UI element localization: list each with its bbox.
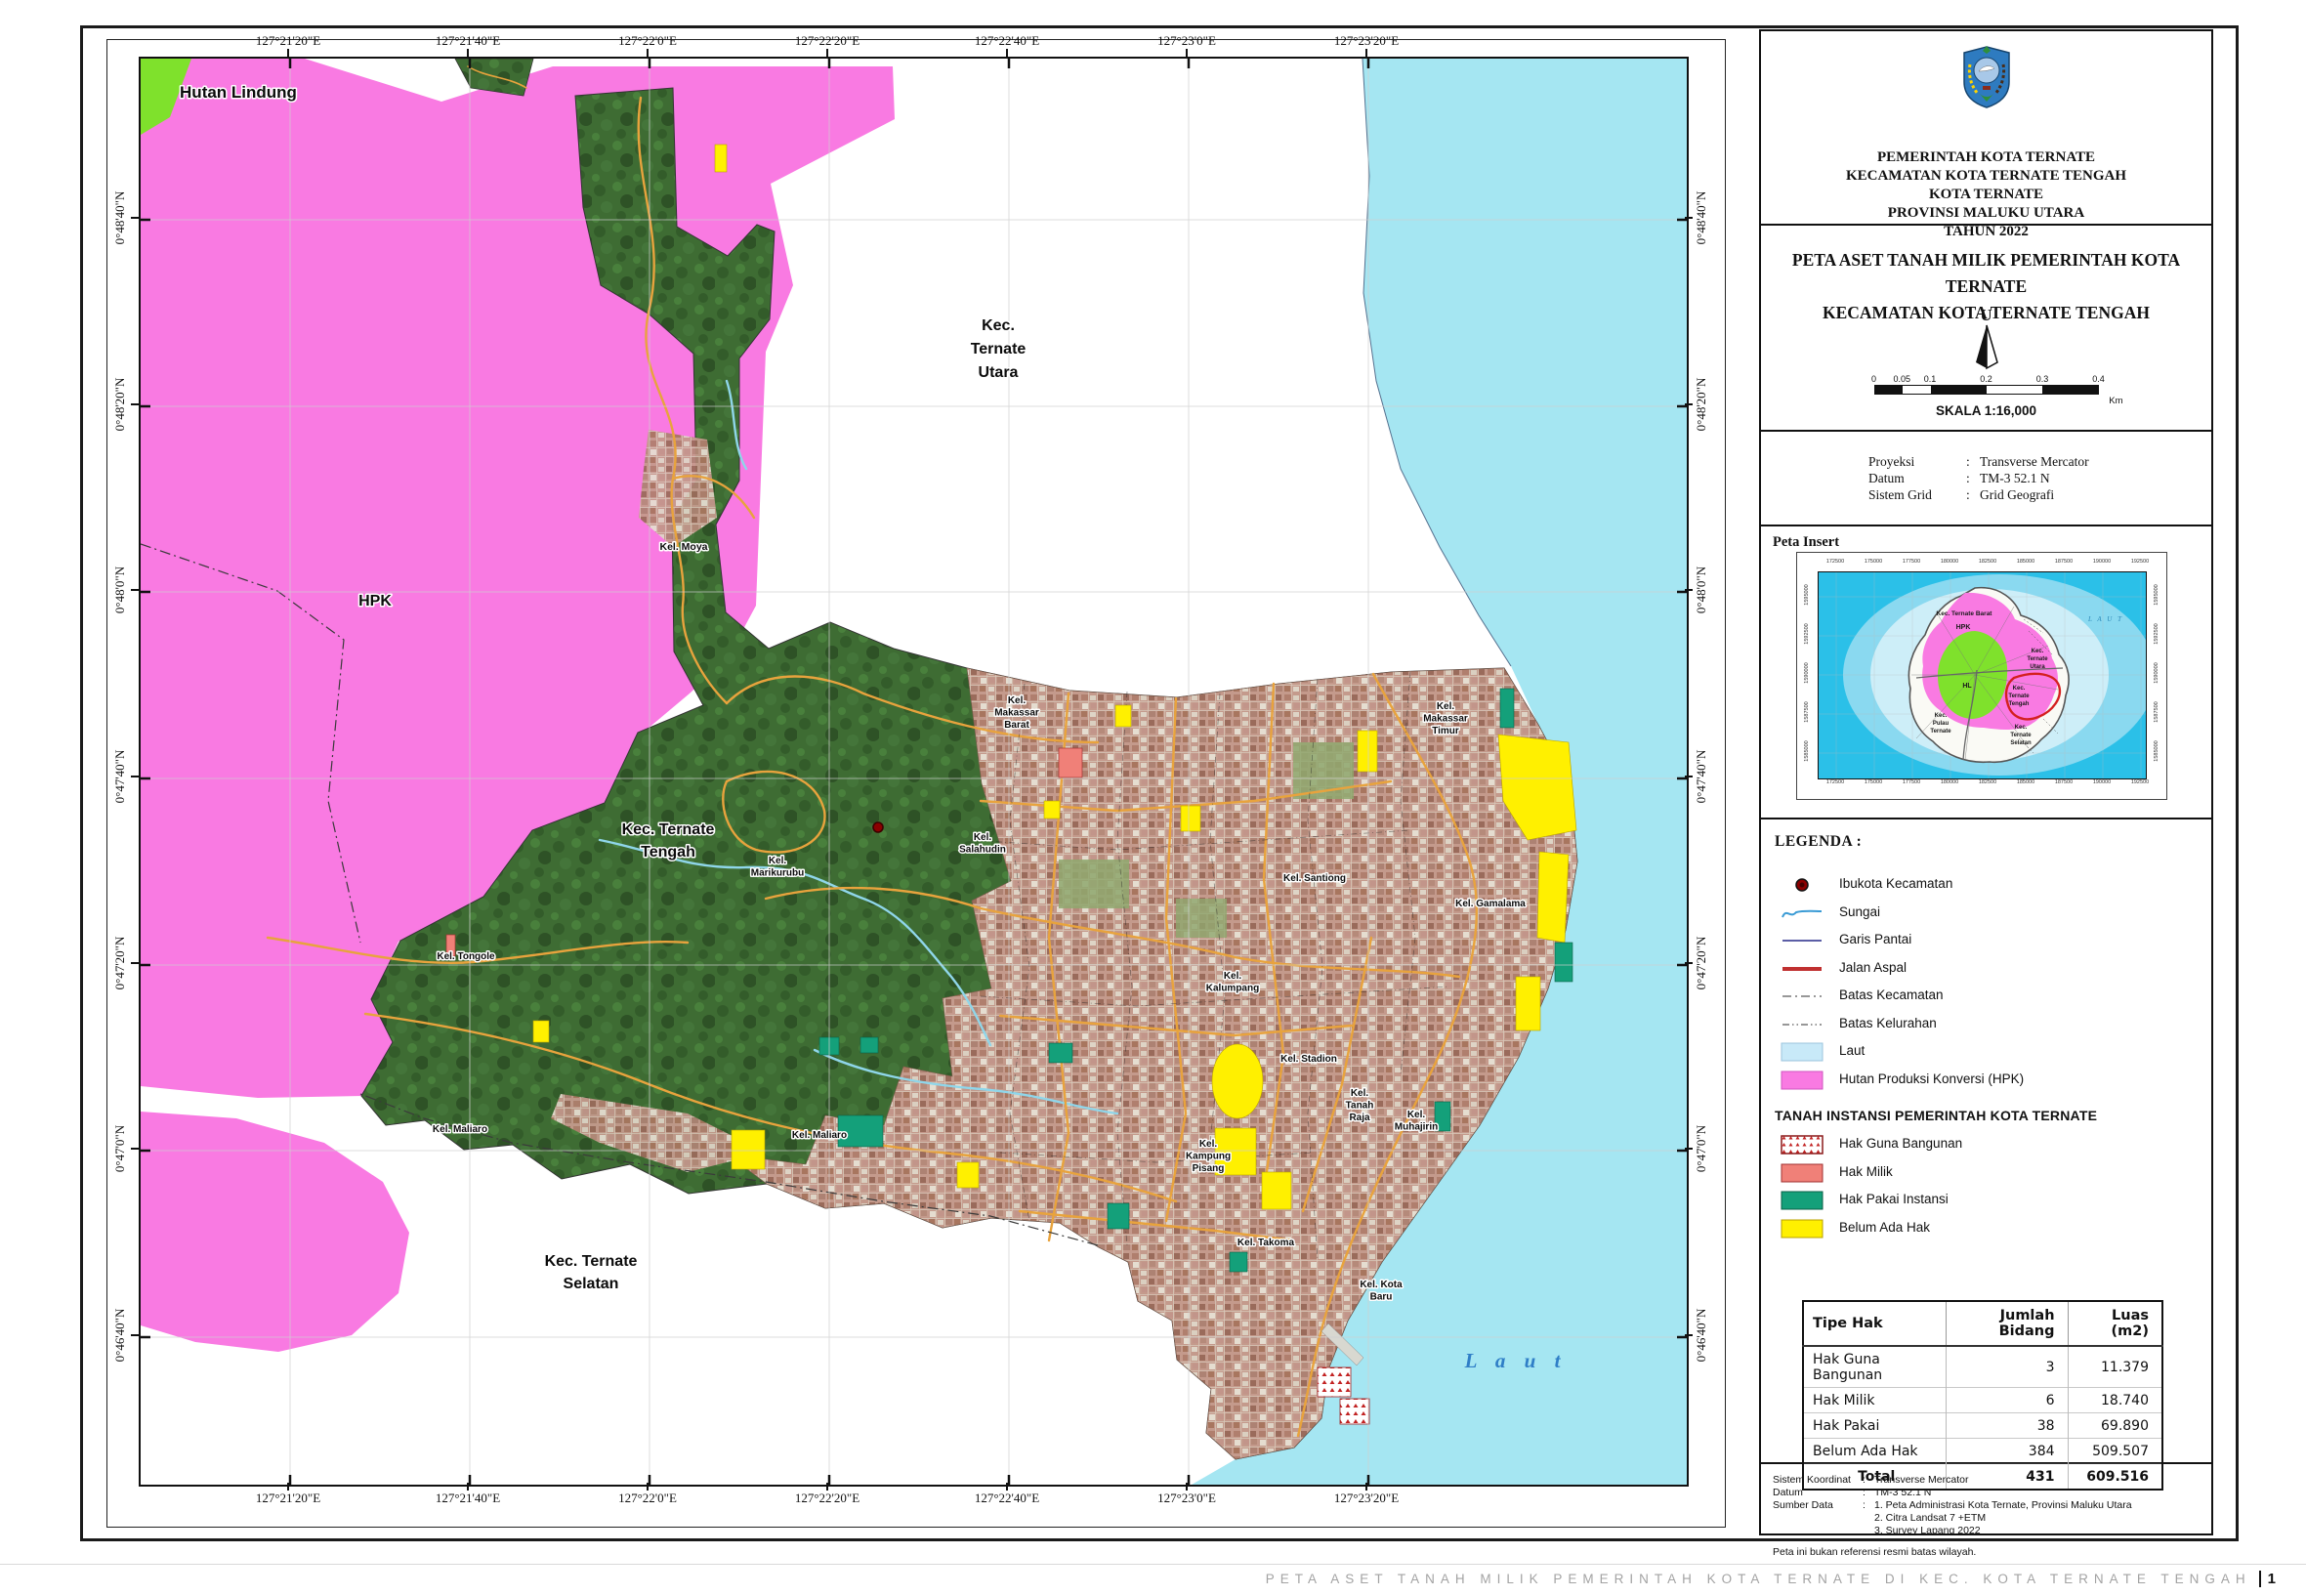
inset-y-label-right: 1595000 — [2154, 579, 2159, 610]
table-cell: Belum Ada Hak — [1803, 1439, 1947, 1464]
place-label: HPK — [358, 593, 392, 609]
legend-item-label: Batas Kecamatan — [1839, 987, 1944, 1002]
place-label: Kel. Gamalama — [1455, 899, 1526, 909]
table-header-jumlah: Jumlah Bidang — [1947, 1301, 2068, 1346]
place-label: Hutan Lindung — [180, 83, 297, 102]
scale-tick-label: 0.3 — [2036, 374, 2049, 384]
table-cell: 69.890 — [2068, 1413, 2162, 1439]
lon-label-top: 127°21'40"E — [424, 33, 512, 49]
table-cell: 509.507 — [2068, 1439, 2162, 1464]
lon-tick — [1365, 49, 1367, 57]
inset-x-label-top: 177500 — [1898, 559, 1925, 565]
table-cell: Hak Milik — [1803, 1388, 1947, 1413]
inset-x-label-top: 187500 — [2050, 559, 2077, 565]
inset-map: Kec. Ternate BaratHPKKec.TernateUtaraHLK… — [1818, 571, 2147, 779]
footer-strip: PETA ASET TANAH MILIK PEMERINTAH KOTA TE… — [0, 1571, 2276, 1587]
inset-y-label-left: 1595000 — [1804, 579, 1810, 610]
map-disclaimer: Peta ini bukan referensi resmi batas wil… — [1773, 1546, 2211, 1559]
source-info-row: Sumber Data:1. Peta Administrasi Kota Te… — [1773, 1499, 2211, 1537]
lon-label-top: 127°23'20"E — [1322, 33, 1410, 49]
tanah-swatch-belum-ada-hak-icon — [1781, 1219, 1824, 1239]
legend-item-label: Garis Pantai — [1839, 932, 1911, 946]
inset-x-label-top: 180000 — [1936, 559, 1963, 565]
lat-tick — [131, 1334, 139, 1336]
projection-row: Sistem Grid:Grid Geografi — [1868, 486, 2211, 503]
lat-label-right: 0°48'0"N — [1694, 546, 1709, 634]
footer-divider — [0, 1564, 2306, 1565]
lon-label-bottom: 127°23'20"E — [1322, 1491, 1410, 1506]
panel-title-section: PETA ASET TANAH MILIK PEMERINTAH KOTA TE… — [1761, 226, 2211, 432]
tanah-swatch-hak-pakai-instansi-icon — [1781, 1191, 1824, 1210]
legend-item-label: Belum Ada Hak — [1839, 1220, 1930, 1235]
inset-label: HPK — [1956, 624, 1971, 631]
lon-label-bottom: 127°22'40"E — [963, 1491, 1051, 1506]
lon-tick — [826, 1483, 828, 1491]
legend-swatch-garis-pantai-icon — [1781, 931, 1824, 950]
legend-item: Laut — [1761, 1041, 2211, 1067]
scale-tick-label: 0.2 — [1980, 374, 1992, 384]
panel-legend-section: LEGENDA : Ibukota KecamatanSungaiGaris P… — [1761, 819, 2211, 1464]
lon-tick — [647, 1483, 649, 1491]
tanah-heading: TANAH INSTANSI PEMERINTAH KOTA TERNATE — [1775, 1108, 2097, 1123]
place-label: L a u t — [1464, 1349, 1568, 1372]
tanah-swatch-hak-guna-bangunan-icon — [1781, 1135, 1824, 1155]
header-line-2: KECAMATAN KOTA TERNATE TENGAH — [1761, 167, 2211, 186]
lat-label-right: 0°48'40"N — [1694, 174, 1709, 262]
legend-item: Sungai — [1761, 903, 2211, 928]
projection-row: Proyeksi:Transverse Mercator — [1868, 453, 2211, 470]
lon-tick — [1006, 49, 1008, 57]
projection-row: Datum:TM-3 52.1 N — [1868, 470, 2211, 486]
inset-x-label-bottom: 185000 — [2012, 779, 2039, 785]
panel-source-section: Sistem Koordinat:Transverse MercatorDatu… — [1761, 1464, 2211, 1531]
panel-inset-section: Peta Insert — [1761, 526, 2211, 819]
legend-item: Hak Milik — [1761, 1162, 2211, 1188]
legend-item: Batas Kelurahan — [1761, 1014, 2211, 1039]
lat-tick — [1685, 1334, 1693, 1336]
scale-unit: Km — [2109, 396, 2122, 406]
header-line-3: KOTA TERNATE — [1761, 186, 2211, 204]
inset-x-label-top: 192500 — [2126, 559, 2154, 565]
inset-y-label-left: 1590000 — [1804, 657, 1810, 689]
table-cell: 6 — [1947, 1388, 2068, 1413]
inset-map-box: Kec. Ternate BaratHPKKec.TernateUtaraHLK… — [1796, 552, 2167, 800]
lon-label-bottom: 127°21'20"E — [244, 1491, 332, 1506]
inset-x-label-bottom: 177500 — [1898, 779, 1925, 785]
lat-label-left: 0°48'0"N — [112, 546, 128, 634]
inset-x-label-bottom: 182500 — [1974, 779, 2001, 785]
lat-tick — [1685, 403, 1693, 405]
header-line-1: PEMERINTAH KOTA TERNATE — [1761, 148, 2211, 167]
inset-label: HL — [1962, 683, 1972, 690]
legend-item-label: Batas Kelurahan — [1839, 1016, 1937, 1030]
place-label: Kel. Moya — [659, 541, 707, 553]
inset-x-label-top: 190000 — [2088, 559, 2116, 565]
table-header-luas: Luas (m2) — [2068, 1301, 2162, 1346]
inset-x-label-bottom: 192500 — [2126, 779, 2154, 785]
header-line-4: PROVINSI MALUKU UTARA — [1761, 204, 2211, 223]
ibukota-kecamatan-marker — [873, 822, 883, 832]
legend-item: Ibukota Kecamatan — [1761, 874, 2211, 900]
place-label: Kel. Maliaro — [433, 1124, 487, 1135]
table-row: Hak Pakai3869.890 — [1803, 1413, 2162, 1439]
inset-y-label-left: 1587500 — [1804, 696, 1810, 728]
lat-tick — [131, 589, 139, 591]
scale-tick-labels: 00.050.10.20.30.4 — [1874, 374, 2099, 385]
lat-label-left: 0°47'40"N — [112, 733, 128, 820]
scale-bar: 00.050.10.20.30.4 Km SKALA 1:16,000 — [1874, 374, 2099, 418]
map-sheet-page: { "header": { "lines": ["PEMERINTAH KOTA… — [0, 0, 2306, 1596]
scale-bar-graphic: Km — [1874, 385, 2099, 395]
inset-x-label-bottom: 172500 — [1822, 779, 1849, 785]
legend-item-label: Laut — [1839, 1043, 1865, 1058]
scale-tick-label: 0.05 — [1893, 374, 1910, 384]
lat-label-right: 0°47'20"N — [1694, 919, 1709, 1007]
legend-item: Hak Guna Bangunan — [1761, 1134, 2211, 1159]
legend-item: Hutan Produksi Konversi (HPK) — [1761, 1070, 2211, 1095]
place-label: Kel. Maliaro — [792, 1130, 847, 1141]
panel-header-section: PEMERINTAH KOTA TERNATE KECAMATAN KOTA T… — [1761, 31, 2211, 226]
lon-label-top: 127°22'20"E — [783, 33, 871, 49]
lat-tick — [131, 1148, 139, 1150]
lon-tick — [1365, 1483, 1367, 1491]
info-panel: PEMERINTAH KOTA TERNATE KECAMATAN KOTA T… — [1759, 29, 2213, 1535]
lon-label-bottom: 127°22'20"E — [783, 1491, 871, 1506]
scale-tick-label: 0.1 — [1924, 374, 1937, 384]
lon-tick — [467, 49, 469, 57]
inset-label: Kec. Ternate Barat — [1937, 610, 1993, 617]
legend-swatch-batas-kecamatan-icon — [1781, 987, 1824, 1006]
map-frame: Hutan LindungHPKKec.TernateUtaraKel. Moy… — [139, 57, 1689, 1487]
lat-label-right: 0°47'0"N — [1694, 1105, 1709, 1193]
lon-tick — [647, 49, 649, 57]
source-info-row: Datum:TM-3 52.1 N — [1773, 1487, 2211, 1499]
legend-item-label: Hutan Produksi Konversi (HPK) — [1839, 1071, 2024, 1086]
inset-heading: Peta Insert — [1773, 534, 1839, 551]
table-row: Belum Ada Hak384509.507 — [1803, 1439, 2162, 1464]
main-map: Hutan LindungHPKKec.TernateUtaraKel. Moy… — [141, 59, 1687, 1485]
lon-tick — [1186, 49, 1188, 57]
lon-label-top: 127°22'0"E — [604, 33, 692, 49]
lat-label-right: 0°48'20"N — [1694, 360, 1709, 448]
inset-x-label-top: 175000 — [1860, 559, 1887, 565]
footer-text: PETA ASET TANAH MILIK PEMERINTAH KOTA TE… — [1266, 1572, 2251, 1586]
kota-ternate-coat-of-arms — [1958, 45, 2015, 109]
table-cell: Hak Guna Bangunan — [1803, 1346, 1947, 1388]
place-label: Kel. Santiong — [1283, 873, 1346, 884]
inset-x-label-bottom: 187500 — [2050, 779, 2077, 785]
legend-item-label: Hak Milik — [1839, 1164, 1893, 1179]
legend-item: Garis Pantai — [1761, 930, 2211, 955]
table-cell: 384 — [1947, 1439, 2068, 1464]
inset-x-label-top: 172500 — [1822, 559, 1849, 565]
legend-item-label: Hak Pakai Instansi — [1839, 1192, 1949, 1206]
legend-item-label: Sungai — [1839, 904, 1880, 919]
inset-y-label-left: 1592500 — [1804, 618, 1810, 650]
lat-tick — [1685, 962, 1693, 964]
lon-label-bottom: 127°22'0"E — [604, 1491, 692, 1506]
legend-heading: LEGENDA : — [1775, 833, 1862, 851]
lon-tick — [287, 1483, 289, 1491]
legend-item: Jalan Aspal — [1761, 958, 2211, 984]
place-label: Kel. Stadion — [1280, 1054, 1337, 1065]
lon-tick — [467, 1483, 469, 1491]
panel-projection-section: Proyeksi:Transverse MercatorDatum:TM-3 5… — [1761, 432, 2211, 526]
legend-item-label: Ibukota Kecamatan — [1839, 876, 1952, 891]
legend-swatch-ibukota-kecamatan-icon — [1781, 875, 1824, 895]
lat-label-right: 0°47'40"N — [1694, 733, 1709, 820]
lat-tick — [131, 217, 139, 219]
table-row: Hak Guna Bangunan311.379 — [1803, 1346, 2162, 1388]
inset-y-label-right: 1585000 — [2154, 735, 2159, 767]
inset-x-label-top: 182500 — [1974, 559, 2001, 565]
lon-tick — [1186, 1483, 1188, 1491]
lon-tick — [826, 49, 828, 57]
inset-sea-label: L A U T — [2087, 615, 2123, 623]
inset-x-label-bottom: 175000 — [1860, 779, 1887, 785]
inset-y-label-right: 1592500 — [2154, 618, 2159, 650]
park-field — [1176, 899, 1227, 938]
table-cell: 38 — [1947, 1413, 2068, 1439]
footer-page-number: 1 — [2259, 1571, 2276, 1587]
lon-tick — [1006, 1483, 1008, 1491]
north-arrow-icon — [1972, 323, 2001, 370]
legend-swatch-laut-icon — [1781, 1042, 1824, 1062]
lat-tick — [1685, 1148, 1693, 1150]
lat-label-left: 0°46'40"N — [112, 1291, 128, 1379]
table-header-tipe-hak: Tipe Hak — [1803, 1301, 1947, 1346]
lat-label-left: 0°47'0"N — [112, 1105, 128, 1193]
legend-item-label: Hak Guna Bangunan — [1839, 1136, 1962, 1151]
legend-item: Batas Kecamatan — [1761, 986, 2211, 1011]
inset-x-label-bottom: 180000 — [1936, 779, 1963, 785]
tanah-swatch-hak-milik-icon — [1781, 1163, 1824, 1183]
lat-label-right: 0°46'40"N — [1694, 1291, 1709, 1379]
lat-tick — [1685, 217, 1693, 219]
lat-tick — [131, 776, 139, 777]
map-title-line-1: PETA ASET TANAH MILIK PEMERINTAH KOTA TE… — [1761, 247, 2211, 300]
table-cell: Hak Pakai — [1803, 1413, 1947, 1439]
legend-swatch-jalan-aspal-icon — [1781, 959, 1824, 979]
lat-tick — [1685, 776, 1693, 777]
legend-item: Belum Ada Hak — [1761, 1218, 2211, 1243]
lat-label-left: 0°48'40"N — [112, 174, 128, 262]
source-info-row: Sistem Koordinat:Transverse Mercator — [1773, 1474, 2211, 1487]
lat-tick — [131, 403, 139, 405]
lat-tick — [1685, 589, 1693, 591]
north-label: U — [1761, 306, 2211, 325]
table-cell: 11.379 — [2068, 1346, 2162, 1388]
inset-x-label-top: 185000 — [2012, 559, 2039, 565]
lat-label-left: 0°48'20"N — [112, 360, 128, 448]
legend-swatch-sungai-icon — [1781, 903, 1824, 923]
inset-y-label-right: 1587500 — [2154, 696, 2159, 728]
inset-y-label-left: 1585000 — [1804, 735, 1810, 767]
table-cell: 3 — [1947, 1346, 2068, 1388]
scale-text: SKALA 1:16,000 — [1874, 403, 2099, 418]
lon-label-bottom: 127°21'40"E — [424, 1491, 512, 1506]
legend-item: Hak Pakai Instansi — [1761, 1190, 2211, 1215]
legend-item-label: Jalan Aspal — [1839, 960, 1907, 975]
lon-label-top: 127°21'20"E — [244, 33, 332, 49]
place-label: Kel. Takoma — [1237, 1238, 1295, 1248]
legend-swatch-hutan-produksi-konversi-hpk--icon — [1781, 1071, 1824, 1090]
lon-label-top: 127°23'0"E — [1143, 33, 1231, 49]
lat-label-left: 0°47'20"N — [112, 919, 128, 1007]
aset-table: Tipe Hak Jumlah Bidang Luas (m2) Hak Gun… — [1802, 1300, 2163, 1491]
lat-tick — [131, 962, 139, 964]
scale-tick-label: 0 — [1871, 374, 1876, 384]
lon-label-top: 127°22'40"E — [963, 33, 1051, 49]
inset-x-label-bottom: 190000 — [2088, 779, 2116, 785]
legend-swatch-batas-kelurahan-icon — [1781, 1015, 1824, 1034]
park-field — [1059, 860, 1129, 908]
lon-label-bottom: 127°23'0"E — [1143, 1491, 1231, 1506]
scale-tick-label: 0.4 — [2092, 374, 2105, 384]
lon-tick — [287, 49, 289, 57]
table-row: Hak Milik618.740 — [1803, 1388, 2162, 1413]
table-cell: 18.740 — [2068, 1388, 2162, 1413]
inset-y-label-right: 1590000 — [2154, 657, 2159, 689]
place-label: Kel. Tongole — [437, 951, 495, 962]
